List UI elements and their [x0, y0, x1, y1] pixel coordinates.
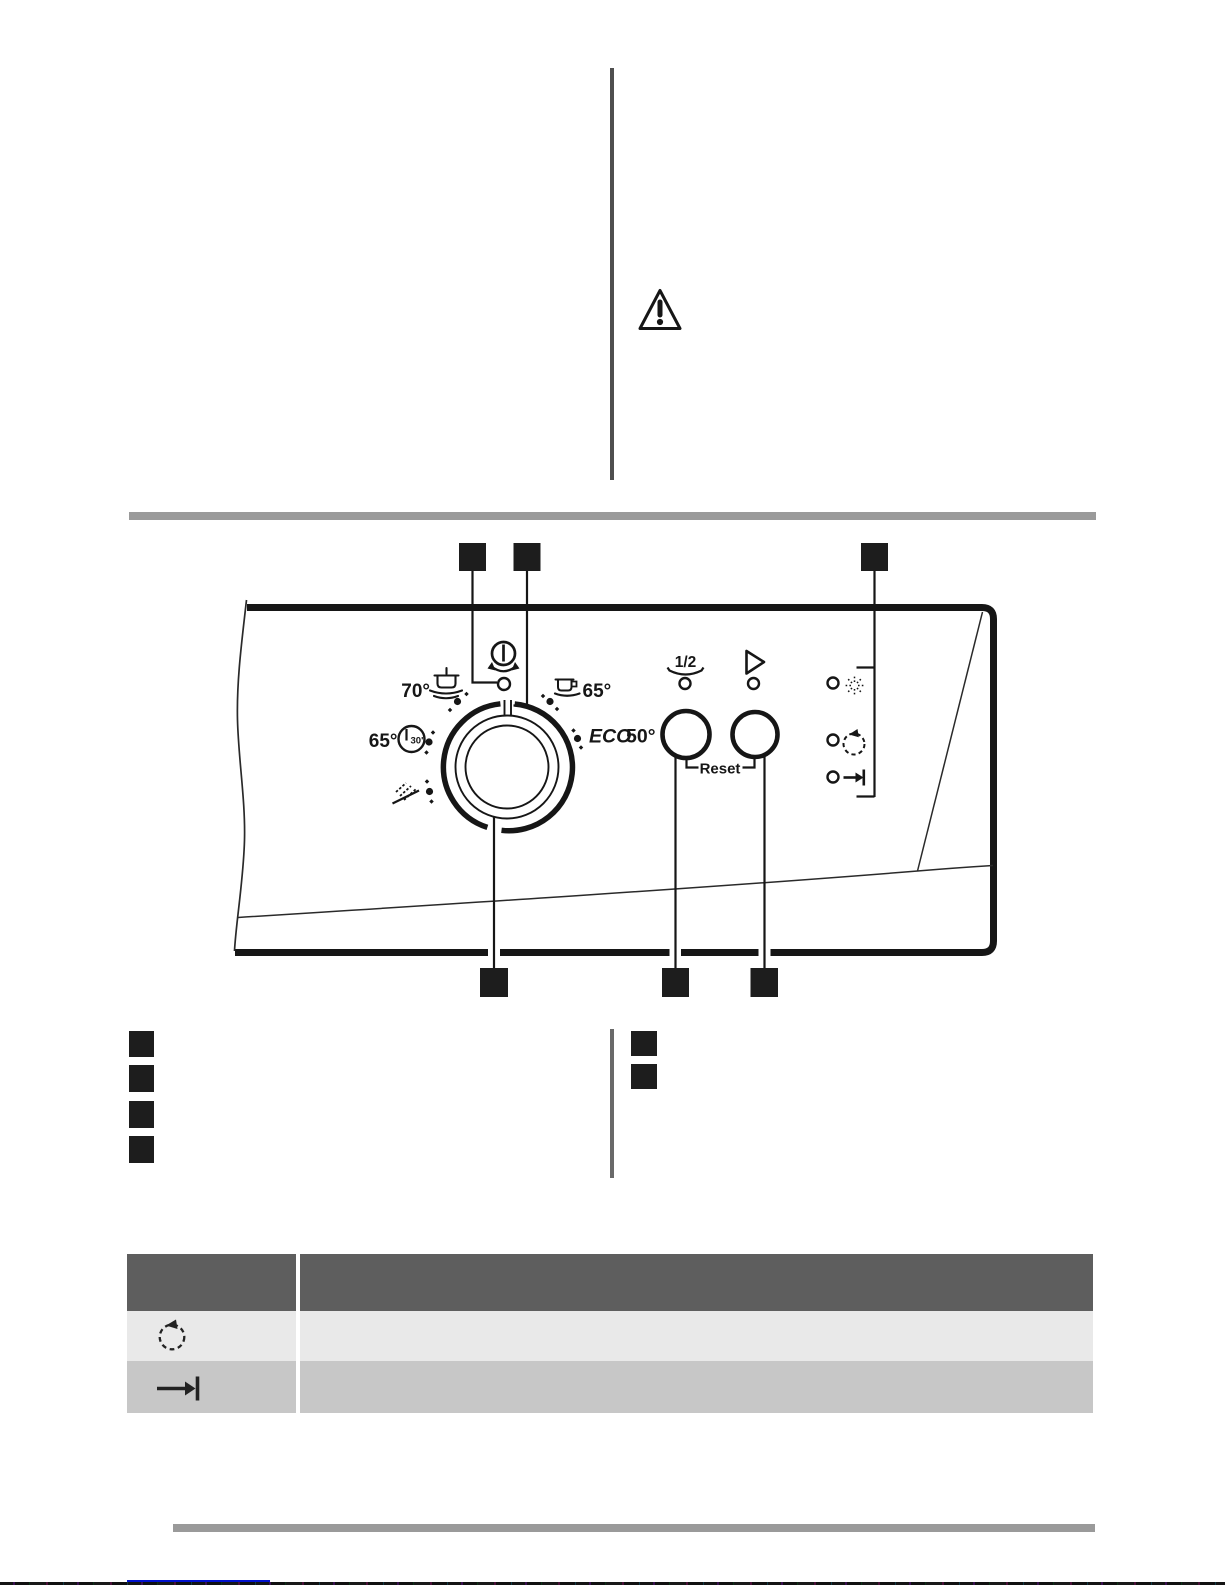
list-marker-6 — [631, 1064, 657, 1089]
quick-time-label: 30' — [411, 736, 424, 747]
callout-marker-4 — [480, 968, 508, 997]
callout-marker-5 — [662, 968, 689, 997]
rinse-aid-indicator-icon — [127, 1311, 296, 1361]
rinse-aid-icon — [844, 729, 865, 755]
program-dial — [443, 700, 572, 831]
table-header-icon-cell — [127, 1254, 296, 1311]
rinse-aid-led — [828, 735, 839, 746]
table-cell-text — [300, 1311, 1093, 1361]
eco-temp-label: 50° — [626, 726, 656, 748]
callout-marker-1 — [459, 543, 486, 571]
cup-icon — [555, 680, 580, 696]
panel-outline — [235, 600, 994, 953]
callout-marker-2 — [514, 543, 541, 571]
half-load-button — [663, 711, 710, 758]
manual-page: 70° 65° 30' 65° — [0, 0, 1225, 1585]
spray-icon — [393, 783, 420, 804]
callout-marker-3 — [861, 543, 888, 571]
salt-icon — [844, 675, 866, 697]
list-marker-1 — [129, 1031, 154, 1057]
table-header-text-cell — [300, 1254, 1093, 1311]
section-bar-top — [129, 512, 1096, 520]
intensive-temp-label: 70° — [401, 681, 430, 702]
power-led — [498, 678, 510, 690]
table-row — [127, 1311, 1093, 1361]
indicator-table — [127, 1254, 1093, 1413]
table-row — [127, 1361, 1093, 1413]
table-header-row — [127, 1254, 1093, 1311]
reset-label: Reset — [700, 761, 741, 778]
power-icon — [492, 642, 515, 665]
start-play-icon — [747, 651, 765, 674]
dial-pointer-notch — [505, 700, 512, 716]
control-panel-diagram: 70° 65° 30' 65° — [120, 538, 1020, 1000]
list-marker-4 — [129, 1136, 154, 1163]
callout-leader-lines — [473, 571, 875, 968]
warning-triangle-icon — [636, 286, 684, 334]
section-bar-bottom — [173, 1524, 1095, 1532]
column-divider — [610, 68, 614, 480]
end-of-programme-indicator-icon — [127, 1361, 296, 1413]
list-marker-2 — [129, 1065, 154, 1092]
end-led — [828, 772, 839, 783]
half-load-led — [680, 678, 691, 689]
table-cell-text — [300, 1361, 1093, 1413]
salt-led — [828, 678, 839, 689]
normal-temp-label: 65° — [583, 681, 612, 702]
clock-icon: 30' — [399, 726, 425, 752]
end-of-programme-icon — [844, 770, 864, 786]
list-marker-5 — [631, 1031, 657, 1056]
eco-name-label: ECO — [589, 726, 631, 748]
start-button — [733, 712, 778, 757]
quick-temp-label: 65° — [369, 731, 398, 752]
half-load-label: 1/2 — [675, 654, 697, 671]
list-column-divider — [610, 1029, 614, 1178]
list-marker-3 — [129, 1101, 154, 1128]
callout-marker-6 — [751, 968, 779, 997]
pot-icon — [430, 668, 462, 698]
start-led — [748, 678, 759, 689]
